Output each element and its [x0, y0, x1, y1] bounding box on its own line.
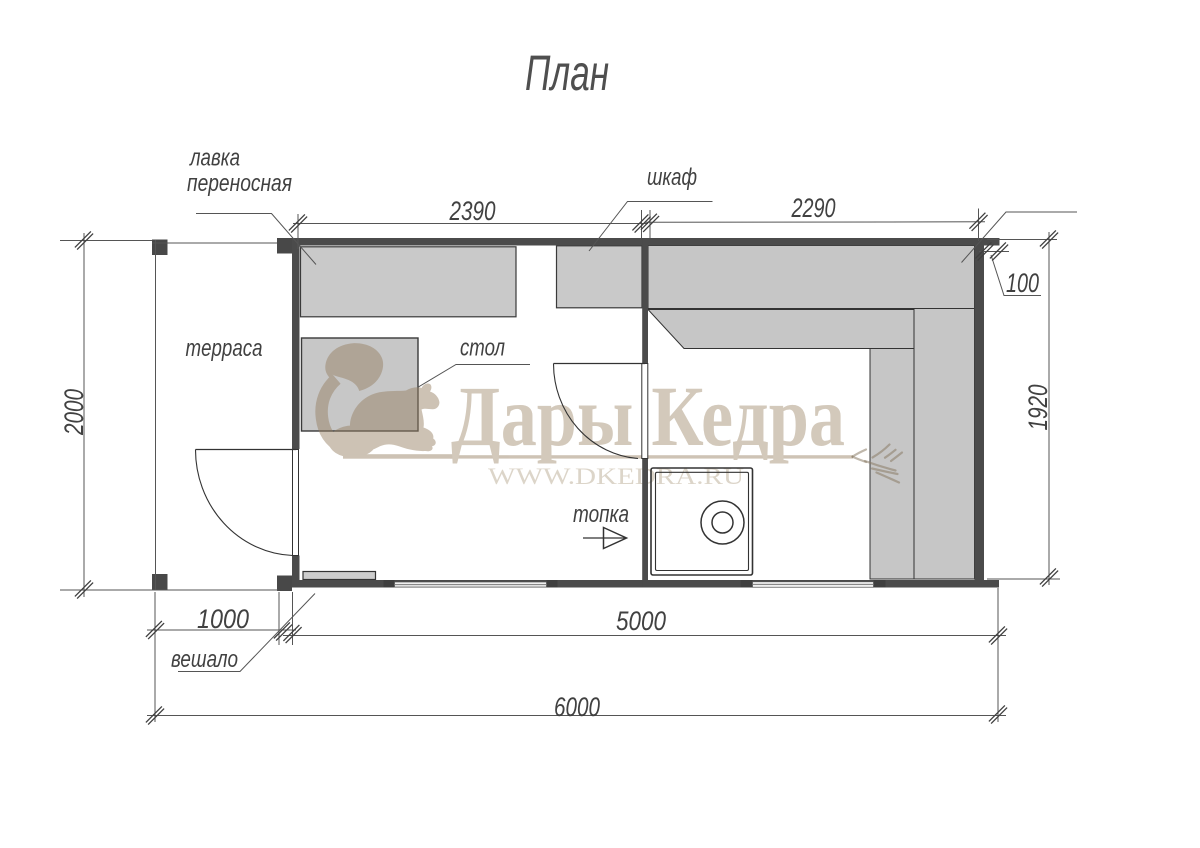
svg-text:стол: стол — [460, 335, 505, 362]
svg-text:2390: 2390 — [449, 196, 496, 226]
svg-text:2000: 2000 — [59, 389, 89, 436]
svg-text:2290: 2290 — [791, 193, 836, 223]
svg-text:100: 100 — [1006, 268, 1039, 298]
svg-text:топка: топка — [573, 501, 629, 528]
svg-text:вешало: вешало — [171, 646, 238, 673]
svg-text:6000: 6000 — [554, 692, 600, 722]
svg-text:переносная: переносная — [187, 170, 292, 197]
svg-text:шкаф: шкаф — [647, 164, 697, 191]
svg-text:План: План — [525, 45, 609, 101]
svg-text:5000: 5000 — [616, 606, 666, 636]
svg-text:1920: 1920 — [1023, 385, 1053, 431]
svg-text:терраса: терраса — [186, 335, 263, 362]
svg-text:лавка: лавка — [188, 145, 240, 172]
svg-text:1000: 1000 — [197, 604, 249, 634]
